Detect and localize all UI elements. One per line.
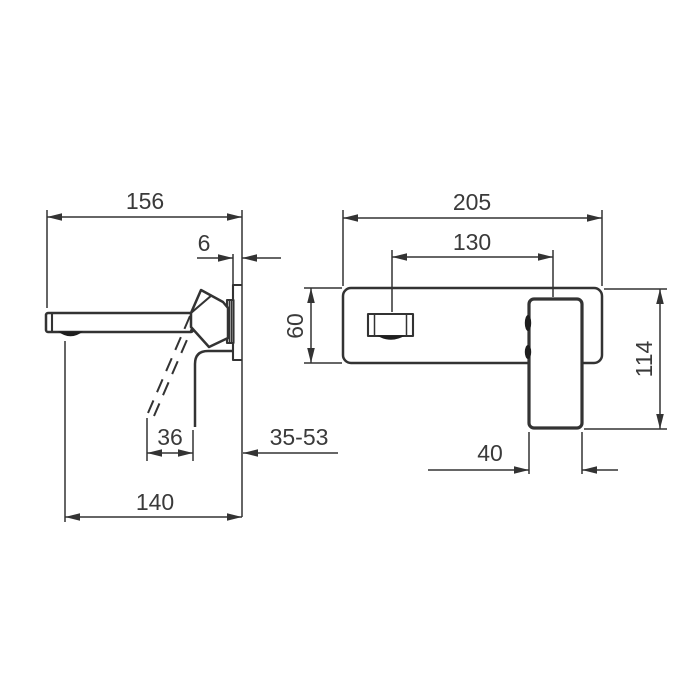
- side-view: 156 6 36 35-53 140: [46, 188, 338, 522]
- front-view: 205 130 60 114 40: [282, 189, 667, 474]
- dim-label-reach: 156: [126, 188, 164, 214]
- dimension-40: 40: [428, 432, 618, 474]
- dim-label-handle-height: 114: [631, 340, 657, 377]
- dimension-156: 156: [47, 188, 242, 308]
- handle-lever-side: [195, 351, 233, 427]
- dim-label-handle-width: 40: [477, 440, 503, 466]
- dim-label-center-distance: 130: [453, 229, 491, 255]
- dim-label-wall-depth-range: 35-53: [270, 424, 329, 450]
- dim-label-spout-length: 140: [136, 489, 174, 515]
- dimension-6: 6: [197, 230, 281, 285]
- dimension-36: 36: [147, 418, 193, 461]
- dimension-60: 60: [282, 288, 342, 363]
- handle-edge-mark: [525, 345, 531, 359]
- handle-edge-mark: [525, 315, 531, 331]
- dim-label-plate-height: 60: [282, 313, 308, 339]
- handle-knob-side: [191, 290, 228, 347]
- dimension-35-53: 35-53: [243, 424, 338, 453]
- dim-label-plate-width: 205: [453, 189, 491, 215]
- handle-front: [529, 299, 582, 428]
- technical-drawing-canvas: 156 6 36 35-53 140: [0, 0, 700, 700]
- dim-label-plate-thickness: 6: [198, 230, 211, 256]
- faucet-dimension-drawing-page: 156 6 36 35-53 140: [0, 0, 700, 700]
- aerator-side: [58, 332, 83, 337]
- dim-label-lever-offset: 36: [157, 424, 183, 450]
- spout-side: [46, 313, 193, 332]
- handle-swing-dashed-line-2: [154, 319, 196, 416]
- dimension-140: 140: [65, 341, 242, 522]
